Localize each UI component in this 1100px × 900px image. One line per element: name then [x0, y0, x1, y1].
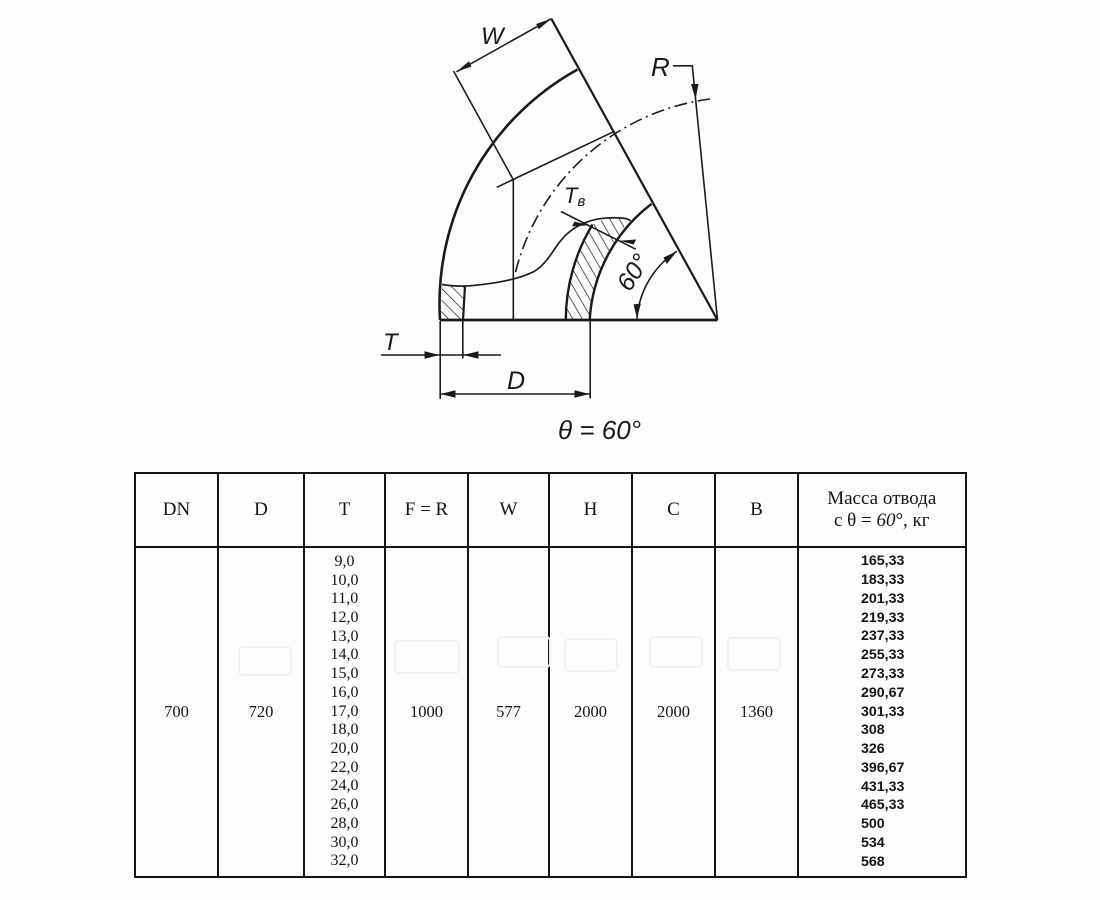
svg-text:60°: 60° — [611, 249, 655, 296]
svg-text:T: T — [383, 329, 400, 356]
svg-text:R: R — [651, 52, 670, 82]
svg-text:Tв: Tв — [564, 183, 585, 210]
svg-text:W: W — [481, 23, 506, 50]
svg-text:θ = 60°: θ = 60° — [558, 415, 641, 445]
svg-text:D: D — [507, 367, 525, 395]
